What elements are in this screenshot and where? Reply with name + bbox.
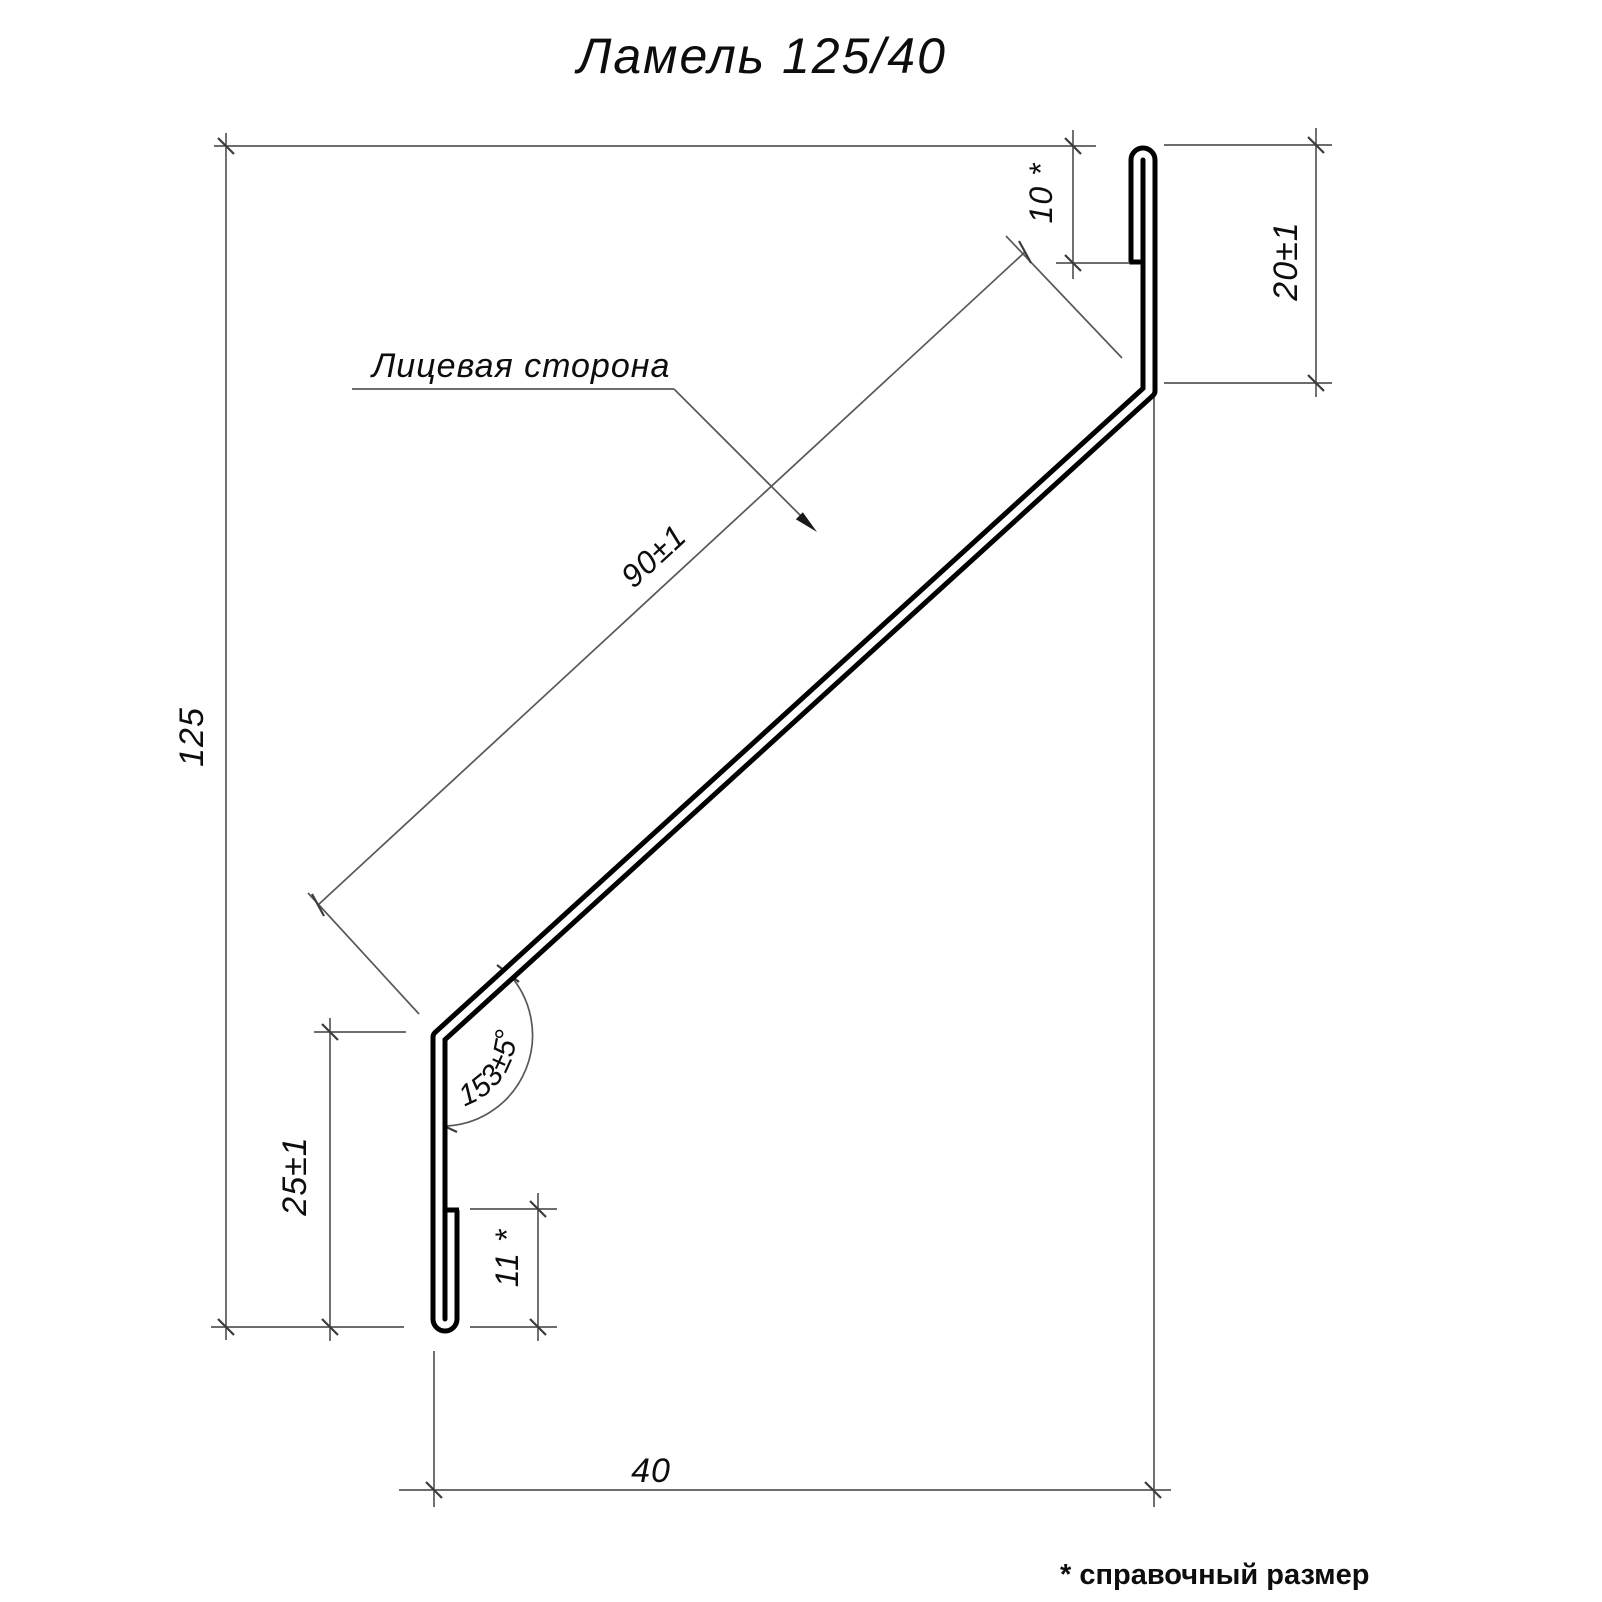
dimension-label-20: 20±1: [1267, 221, 1305, 301]
dimension-label-40: 40: [631, 1452, 671, 1490]
dimension-label-angle: 153±5°: [453, 1028, 523, 1113]
page-title: Ламель 125/40: [574, 28, 947, 84]
tick: [312, 894, 324, 916]
dimension-25: 25±1: [276, 1018, 338, 1341]
face-side-leader: Лицевая сторона: [352, 347, 817, 532]
dimension-20: 20±1: [1267, 128, 1324, 397]
dimension-label-25: 25±1: [276, 1136, 314, 1216]
dimension-125: 125: [173, 133, 234, 1340]
profile: [439, 154, 1149, 1325]
face-side-label: Лицевая сторона: [370, 347, 670, 385]
dimension-label-10: 10 *: [1023, 162, 1059, 223]
dimension-label-11: 11 *: [489, 1228, 525, 1287]
dimension-11: 11 *: [489, 1193, 546, 1341]
profile-inner-face: [439, 154, 1149, 1325]
extension-line-90-lower: [308, 893, 419, 1014]
leader-line: [674, 389, 806, 521]
dimension-40: 40: [399, 1452, 1171, 1498]
dimension-label-90: 90±1: [614, 517, 693, 594]
technical-drawing: Ламель 125/40 125 90±1 10 *: [0, 0, 1602, 1602]
footnote: * справочный размер: [1060, 1559, 1369, 1591]
dimension-label-125: 125: [173, 707, 211, 767]
profile-outline: [439, 154, 1149, 1325]
dimension-10: 10 *: [1023, 130, 1081, 279]
